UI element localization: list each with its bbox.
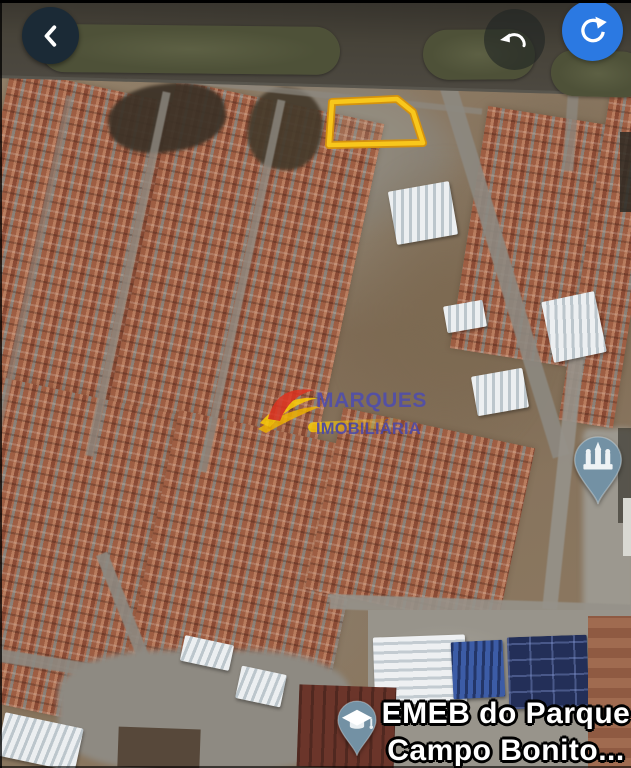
chevron-left-icon xyxy=(34,19,68,53)
school-label-line1: EMEB do Parque xyxy=(381,695,631,732)
map-warehouse xyxy=(388,181,458,245)
map-shadow-strip xyxy=(620,132,631,212)
screen-edge xyxy=(0,0,2,768)
refresh-button[interactable] xyxy=(562,0,623,61)
church-icon xyxy=(569,434,627,506)
refresh-icon xyxy=(575,13,611,49)
map-dark-roof-building xyxy=(117,727,200,768)
watermark-text: MARQUES IMOBILIÁRIA xyxy=(316,389,436,413)
map-school-building-blue xyxy=(451,640,506,700)
brand-watermark: MARQUES IMOBILIÁRIA xyxy=(256,379,441,439)
map-light-strip xyxy=(623,498,631,556)
screen-edge xyxy=(0,0,631,3)
map-grass-median xyxy=(40,24,341,75)
school-poi-label[interactable]: EMEB do Parque Campo Bonito... xyxy=(381,695,631,768)
undo-arrow-icon xyxy=(497,22,533,58)
graduation-cap-icon xyxy=(334,694,380,762)
school-pin[interactable] xyxy=(334,694,380,762)
app-screen: MARQUES IMOBILIÁRIA xyxy=(0,0,631,768)
watermark-name: MARQUES xyxy=(316,389,436,413)
church-pin[interactable] xyxy=(569,434,627,506)
undo-button[interactable] xyxy=(484,9,545,70)
back-button[interactable] xyxy=(22,7,79,64)
watermark-type: IMOBILIÁRIA xyxy=(316,420,421,439)
school-label-line2: Campo Bonito... xyxy=(381,732,631,768)
